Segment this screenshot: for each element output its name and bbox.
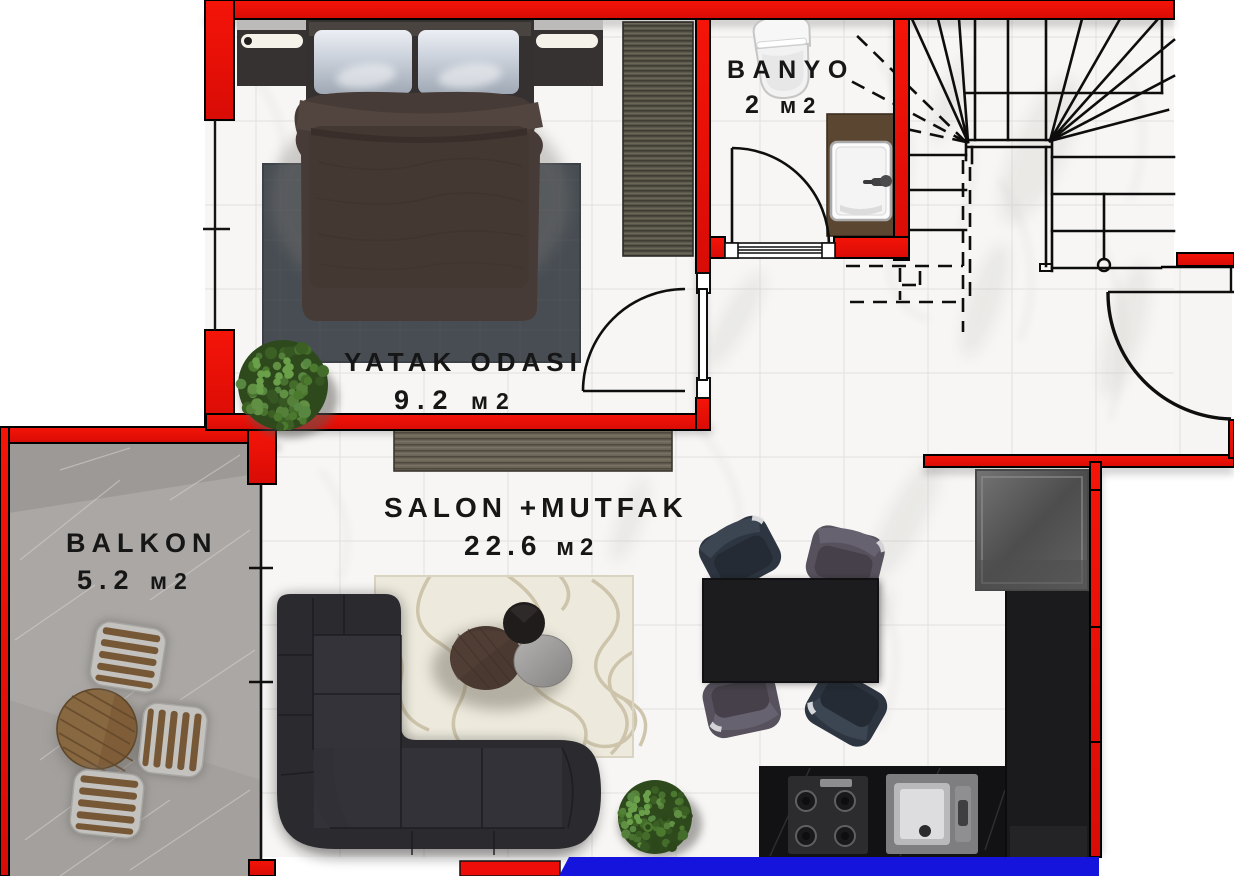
svg-text:SALON +MUTFAK: SALON +MUTFAK bbox=[384, 492, 688, 523]
svg-text:5.2 м2: 5.2 м2 bbox=[77, 565, 194, 595]
svg-text:2 м2: 2 м2 bbox=[745, 91, 822, 119]
svg-text:BANYO: BANYO bbox=[727, 56, 855, 84]
svg-text:YATAK ODASI: YATAK ODASI bbox=[344, 347, 583, 377]
svg-text:BALKON: BALKON bbox=[66, 528, 218, 558]
svg-text:9.2 м2: 9.2 м2 bbox=[394, 385, 517, 415]
svg-text:22.6 м2: 22.6 м2 bbox=[464, 530, 599, 561]
